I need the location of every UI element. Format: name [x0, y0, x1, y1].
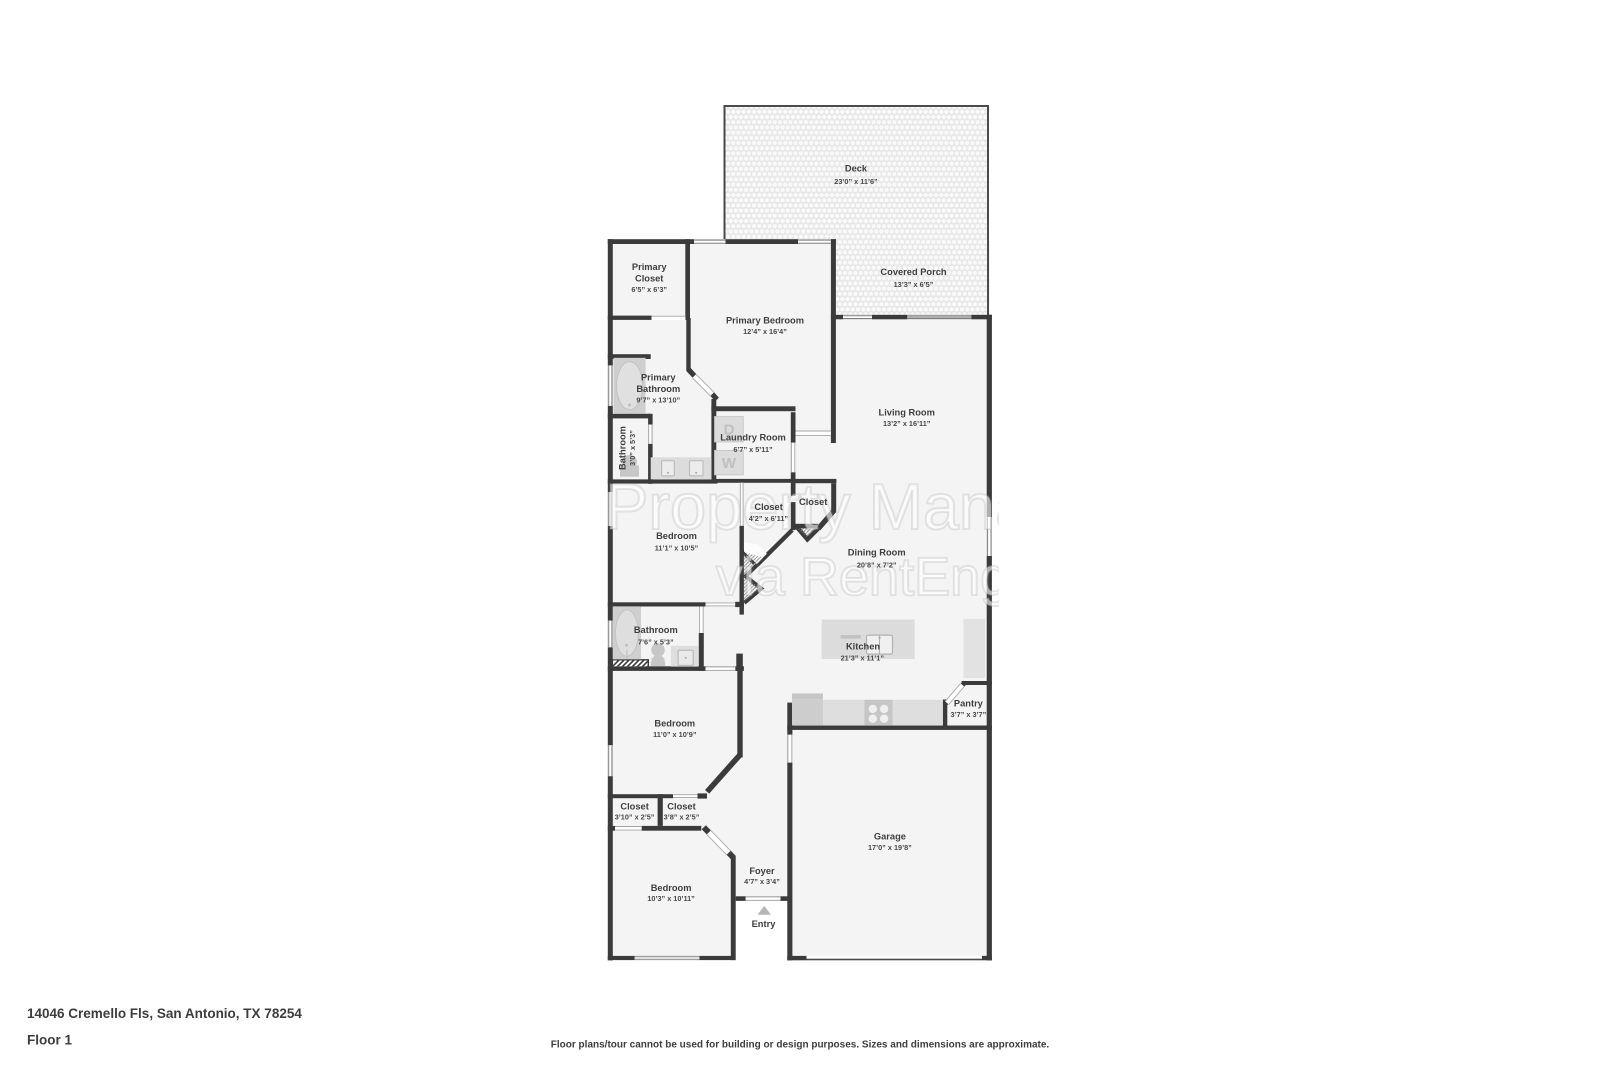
svg-text:Closet: Closet — [799, 497, 827, 507]
svg-text:14046 Cremello Fls, San Antoni: 14046 Cremello Fls, San Antonio, TX 7825… — [27, 1006, 302, 1021]
svg-text:Closet: Closet — [667, 801, 695, 811]
svg-text:6’5” x 6’3”: 6’5” x 6’3” — [631, 285, 667, 294]
svg-text:3’10” x 2’5”: 3’10” x 2’5” — [615, 813, 655, 822]
svg-text:Entry: Entry — [752, 919, 777, 929]
svg-text:Living Room: Living Room — [879, 407, 935, 417]
svg-text:Bedroom: Bedroom — [651, 883, 692, 893]
svg-text:Garage: Garage — [874, 832, 906, 842]
svg-text:3’7” x 3’7”: 3’7” x 3’7” — [951, 710, 987, 719]
svg-text:4’7” x 3’4”: 4’7” x 3’4” — [744, 877, 780, 886]
svg-text:Bedroom: Bedroom — [654, 719, 695, 729]
svg-text:Kitchen: Kitchen — [846, 641, 880, 651]
svg-text:3’0” x 5’3”: 3’0” x 5’3” — [628, 430, 637, 466]
svg-text:Dining Room: Dining Room — [848, 548, 906, 558]
svg-text:3’8” x 2’5”: 3’8” x 2’5” — [664, 813, 700, 822]
svg-text:10’3” x 10’11”: 10’3” x 10’11” — [647, 894, 695, 903]
svg-text:Bathroom: Bathroom — [618, 426, 628, 470]
svg-text:Bathroom: Bathroom — [636, 384, 680, 394]
svg-text:23’0” x 11’6”: 23’0” x 11’6” — [834, 177, 878, 186]
svg-text:9’7” x 13’10”: 9’7” x 13’10” — [636, 395, 680, 404]
svg-text:21’3” x 11’1”: 21’3” x 11’1” — [841, 653, 885, 662]
svg-text:17’0” x 19’8”: 17’0” x 19’8” — [868, 843, 912, 852]
svg-text:Bedroom: Bedroom — [656, 531, 697, 541]
svg-text:11’1” x 10’5”: 11’1” x 10’5” — [655, 543, 699, 552]
svg-text:Deck: Deck — [845, 164, 868, 174]
svg-text:Floor 1: Floor 1 — [27, 1033, 72, 1048]
svg-text:Primary: Primary — [641, 372, 676, 382]
svg-text:Primary: Primary — [632, 262, 667, 272]
svg-text:Laundry Room: Laundry Room — [720, 433, 786, 443]
svg-text:20’8” x 7’2”: 20’8” x 7’2” — [857, 561, 897, 570]
svg-text:7’6” x 5’3”: 7’6” x 5’3” — [638, 637, 674, 646]
svg-text:Floor plans/tour cannot be use: Floor plans/tour cannot be used for buil… — [551, 1040, 1050, 1051]
svg-text:Closet: Closet — [754, 502, 782, 512]
svg-text:Closet: Closet — [635, 274, 663, 284]
svg-text:Bathroom: Bathroom — [634, 625, 678, 635]
svg-text:Closet: Closet — [620, 801, 648, 811]
svg-text:Primary Bedroom: Primary Bedroom — [726, 315, 804, 325]
svg-text:4’2” x 6’11”: 4’2” x 6’11” — [749, 514, 789, 523]
svg-text:13’3” x 6’5”: 13’3” x 6’5” — [894, 280, 934, 289]
svg-text:Pantry: Pantry — [954, 698, 984, 708]
svg-text:12’4” x 16’4”: 12’4” x 16’4” — [743, 327, 787, 336]
svg-text:Foyer: Foyer — [749, 866, 775, 876]
svg-text:Covered Porch: Covered Porch — [880, 267, 946, 277]
svg-text:13’2” x 16’11”: 13’2” x 16’11” — [883, 419, 931, 428]
svg-text:6’7” x 5’11”: 6’7” x 5’11” — [733, 445, 773, 454]
svg-text:11’0” x 10’9”: 11’0” x 10’9” — [653, 730, 697, 739]
